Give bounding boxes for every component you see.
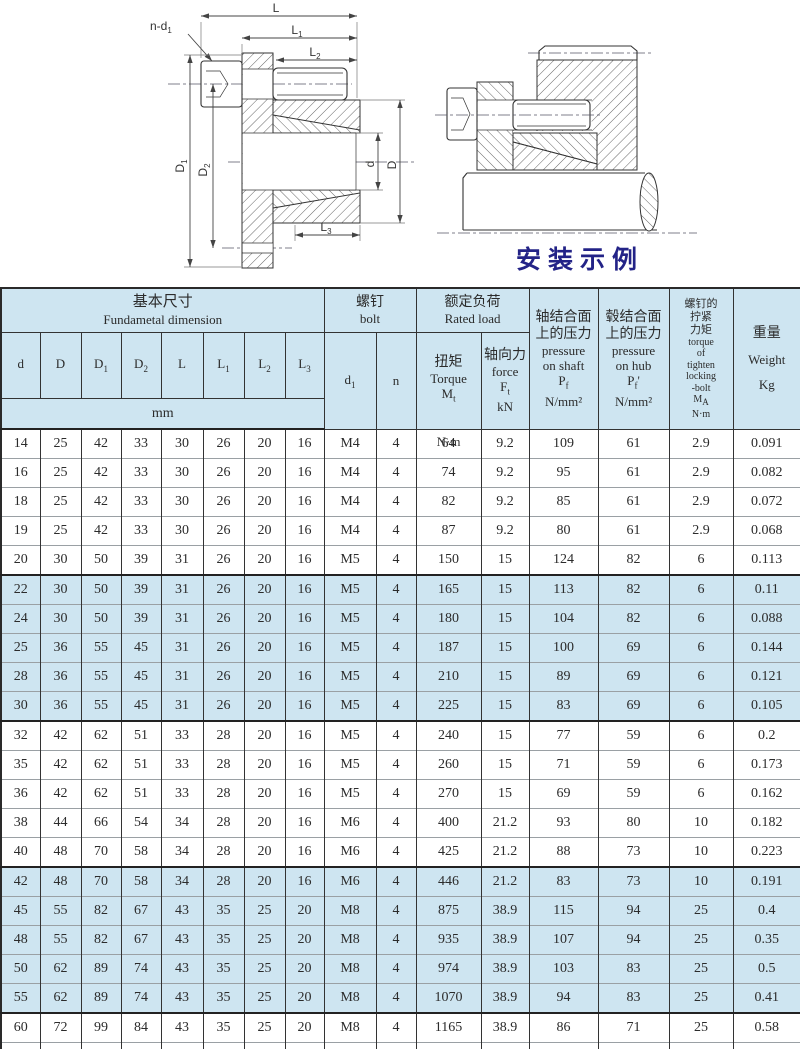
table-cell: 25 — [40, 488, 81, 517]
table-cell: 43 — [161, 1013, 203, 1043]
table-cell: 21.2 — [481, 809, 529, 838]
table-cell: 9.2 — [481, 517, 529, 546]
table-cell: 24 — [1, 605, 40, 634]
table-cell: 15 — [481, 751, 529, 780]
table-row: 2430503931262016M54180151048260.088 — [1, 605, 800, 634]
table-cell: M4 — [324, 459, 376, 488]
table-cell: 31 — [161, 663, 203, 692]
table-cell: 62 — [40, 955, 81, 984]
table-cell: M5 — [324, 575, 376, 605]
table-cell: 82 — [81, 926, 121, 955]
table-row: 6072998443352520M84116538.98671250.58 — [1, 1013, 800, 1043]
table-cell: 25 — [669, 1013, 733, 1043]
table-cell: M5 — [324, 780, 376, 809]
table-cell: 4 — [376, 517, 416, 546]
dim-label-L2: L2 — [309, 45, 321, 61]
dim-label-D1: D1 — [173, 159, 189, 173]
table-cell: 16 — [285, 459, 324, 488]
table-cell: 187 — [416, 634, 481, 663]
table-row: 5562897443352520M84107038.99483250.41 — [1, 984, 800, 1014]
table-cell: 0.46 — [733, 1043, 800, 1049]
table-cell: 4 — [376, 634, 416, 663]
table-cell: 20 — [244, 488, 285, 517]
table-cell: 20 — [244, 517, 285, 546]
table-cell: M4 — [324, 517, 376, 546]
table-cell: 20 — [244, 429, 285, 459]
dim-label-D: D — [385, 160, 399, 169]
table-cell: 16 — [285, 721, 324, 751]
table-cell: 0.41 — [733, 984, 800, 1014]
table-cell: 72 — [40, 1013, 81, 1043]
table-cell: 20 — [285, 984, 324, 1014]
table-cell: 21.2 — [481, 867, 529, 897]
table-cell: 84 — [121, 1013, 161, 1043]
table-cell: M8 — [324, 955, 376, 984]
table-cell: 15 — [481, 634, 529, 663]
table-cell: M5 — [324, 721, 376, 751]
col-header-L3: L3 — [285, 332, 324, 398]
shaft — [437, 173, 697, 233]
table-cell: 33 — [161, 721, 203, 751]
table-cell: 69 — [598, 634, 669, 663]
table-cell: 0.11 — [733, 575, 800, 605]
table-cell: 30 — [161, 459, 203, 488]
col-header-axial-force: 轴向力 force Ft kN — [481, 332, 529, 429]
table-cell: 73 — [598, 838, 669, 868]
table-cell: 0.58 — [733, 1013, 800, 1043]
table-cell: 62 — [81, 721, 121, 751]
table-cell: 39 — [121, 546, 161, 576]
table-cell: 55 — [81, 692, 121, 722]
table-cell: M8 — [324, 984, 376, 1014]
table-cell: 15 — [481, 692, 529, 722]
table-row: 3542625133282016M5426015715960.173 — [1, 751, 800, 780]
header-rated-load: 额定负荷 Rated load — [416, 288, 529, 332]
table-cell: 48 — [40, 838, 81, 868]
table-cell: 20 — [285, 926, 324, 955]
table-cell: 65 — [1, 1043, 40, 1049]
table-cell: 42 — [81, 488, 121, 517]
table-cell: 20 — [244, 663, 285, 692]
table-cell: 25 — [244, 897, 285, 926]
table-cell: 113 — [529, 575, 598, 605]
table-cell: 16 — [285, 517, 324, 546]
table-cell: 9.2 — [481, 429, 529, 459]
table-cell: 150 — [416, 546, 481, 576]
table-cell: 25 — [244, 1013, 285, 1043]
table-cell: 1165 — [416, 1013, 481, 1043]
table-cell: 103 — [529, 955, 598, 984]
table-cell: 39 — [121, 605, 161, 634]
table-cell: 30 — [161, 429, 203, 459]
table-cell: 26 — [203, 546, 244, 576]
table-cell: 87 — [416, 517, 481, 546]
table-row: 4855826743352520M8493538.910794250.35 — [1, 926, 800, 955]
table-cell: 30 — [40, 546, 81, 576]
table-cell: 83 — [529, 867, 598, 897]
table-cell: 45 — [121, 692, 161, 722]
table-cell: 34 — [161, 867, 203, 897]
table-cell: 4 — [376, 897, 416, 926]
table-cell: 35 — [203, 1043, 244, 1049]
table-cell: 59 — [598, 751, 669, 780]
table-row: 3844665434282016M6440021.29380100.182 — [1, 809, 800, 838]
table-cell: 69 — [529, 780, 598, 809]
table-cell: 94 — [529, 984, 598, 1014]
table-cell: 55 — [1, 984, 40, 1014]
table-cell: 64 — [416, 429, 481, 459]
table-cell: 25 — [669, 955, 733, 984]
table-cell: 25 — [244, 926, 285, 955]
table-cell: 0.068 — [733, 517, 800, 546]
table-cell: 4 — [376, 488, 416, 517]
table-cell: 36 — [1, 780, 40, 809]
table-cell: 30 — [161, 517, 203, 546]
table-cell: 60 — [1, 1013, 40, 1043]
header-unit-mm: mm — [1, 398, 324, 429]
table-cell: 4 — [376, 751, 416, 780]
table-cell: 34 — [161, 838, 203, 868]
table-cell: 34 — [161, 809, 203, 838]
table-cell: 51 — [121, 780, 161, 809]
table-cell: 10 — [669, 809, 733, 838]
dim-label-nd1: n-d1 — [150, 19, 172, 35]
table-cell: 28 — [203, 751, 244, 780]
table-cell: 26 — [203, 605, 244, 634]
table-cell: M8 — [324, 1043, 376, 1049]
table-cell: 30 — [40, 575, 81, 605]
table-cell: 35 — [203, 897, 244, 926]
table-cell: 61 — [598, 488, 669, 517]
table-cell: 55 — [40, 897, 81, 926]
table-cell: 31 — [161, 575, 203, 605]
table-cell: 61 — [598, 517, 669, 546]
table-cell: 20 — [244, 459, 285, 488]
table-cell: 55 — [40, 926, 81, 955]
table-cell: 21.2 — [481, 838, 529, 868]
table-cell: 16 — [285, 751, 324, 780]
table-cell: 270 — [416, 780, 481, 809]
table-cell: 45 — [121, 663, 161, 692]
table-cell: 935 — [416, 926, 481, 955]
table-cell: 61 — [598, 429, 669, 459]
table-cell: 30 — [40, 605, 81, 634]
table-cell: 6 — [669, 751, 733, 780]
table-cell: 6 — [669, 575, 733, 605]
table-cell: 82 — [598, 575, 669, 605]
table-cell: 20 — [244, 809, 285, 838]
table-cell: 51 — [121, 721, 161, 751]
table-cell: 225 — [416, 692, 481, 722]
table-cell: M6 — [324, 838, 376, 868]
table-cell: 20 — [244, 634, 285, 663]
table-cell: 4 — [376, 838, 416, 868]
table-cell: 62 — [81, 780, 121, 809]
table-cell: 38.9 — [481, 955, 529, 984]
header-basic-dimension: 基本尺寸 Fundametal dimension — [1, 288, 324, 332]
col-header-torque: 扭矩 Torque Mt N·m — [416, 332, 481, 429]
table-cell: 4 — [376, 692, 416, 722]
table-cell: 4 — [376, 809, 416, 838]
table-cell: 15 — [481, 663, 529, 692]
col-header-D: D — [40, 332, 81, 398]
table-cell: M5 — [324, 751, 376, 780]
table-cell: 2.9 — [669, 429, 733, 459]
table-cell: M5 — [324, 634, 376, 663]
table-cell: 82 — [416, 488, 481, 517]
table-row: 2836554531262016M5421015896960.121 — [1, 663, 800, 692]
table-cell: 25 — [244, 955, 285, 984]
table-cell: 89 — [529, 663, 598, 692]
dim-label-D2: D2 — [196, 163, 212, 177]
table-cell: 16 — [285, 605, 324, 634]
table-cell: 85 — [529, 488, 598, 517]
table-cell: 35 — [203, 926, 244, 955]
table-cell: 425 — [416, 838, 481, 868]
table-cell: 35 — [203, 955, 244, 984]
table-row: 1825423330262016M44829.285612.90.072 — [1, 488, 800, 517]
table-row: 2230503931262016M54165151138260.11 — [1, 575, 800, 605]
table-cell: M5 — [324, 546, 376, 576]
col-header-D2: D2 — [121, 332, 161, 398]
table-cell: 33 — [161, 780, 203, 809]
table-cell: 16 — [285, 575, 324, 605]
table-cell: 25 — [669, 1043, 733, 1049]
table-cell: 4 — [376, 1013, 416, 1043]
table-cell: 15 — [481, 575, 529, 605]
table-cell: 25 — [40, 429, 81, 459]
table-cell: 43 — [161, 926, 203, 955]
table-cell: 38.9 — [481, 984, 529, 1014]
table-body: 1425423330262016M44649.2109612.90.091162… — [1, 429, 800, 1049]
drawings-panel: L L1 L2 L3 n-d1 D1 — [0, 0, 800, 287]
table-cell: 48 — [40, 867, 81, 897]
col-header-pressure-hub: 毂结合面 上的压力 pressure on hub Pf' N/mm² — [598, 288, 669, 429]
table-cell: 50 — [81, 605, 121, 634]
table-cell: 875 — [416, 897, 481, 926]
table-cell: 31 — [161, 546, 203, 576]
table-cell: 82 — [598, 546, 669, 576]
table-cell: 6 — [669, 605, 733, 634]
table-cell: 66 — [81, 809, 121, 838]
shaft-end-section — [640, 173, 658, 231]
table-cell: 42 — [40, 780, 81, 809]
table-cell: 16 — [285, 838, 324, 868]
table-row: 6572998443352520M84126538.97971250.46 — [1, 1043, 800, 1049]
table-row: 3642625133282016M5427015695960.162 — [1, 780, 800, 809]
table-cell: 6 — [669, 663, 733, 692]
table-cell: 10 — [669, 867, 733, 897]
table-cell: 20 — [244, 692, 285, 722]
drawings-svg: L L1 L2 L3 n-d1 D1 — [0, 0, 800, 287]
table-cell: 16 — [285, 429, 324, 459]
table-cell: 35 — [203, 1013, 244, 1043]
table-cell: 100 — [529, 634, 598, 663]
table-cell: 180 — [416, 605, 481, 634]
table-cell: 0.105 — [733, 692, 800, 722]
table-cell: 4 — [376, 721, 416, 751]
table-cell: 4 — [376, 546, 416, 576]
table-cell: 0.088 — [733, 605, 800, 634]
table-cell: 0.082 — [733, 459, 800, 488]
table-cell: 25 — [1, 634, 40, 663]
table-cell: 25 — [669, 897, 733, 926]
table-cell: 94 — [598, 897, 669, 926]
table-cell: 0.162 — [733, 780, 800, 809]
table-cell: 61 — [598, 459, 669, 488]
table-cell: 26 — [203, 692, 244, 722]
table-cell: 20 — [285, 1013, 324, 1043]
table-cell: 16 — [285, 809, 324, 838]
table-cell: 71 — [598, 1013, 669, 1043]
col-header-tightening-torque: 螺钉的 拧紧 力矩 torque of tighten locking -bol… — [669, 288, 733, 429]
table-cell: 4 — [376, 1043, 416, 1049]
dim-label-L1: L1 — [291, 23, 303, 39]
table-cell: 446 — [416, 867, 481, 897]
table-row: 1625423330262016M44749.295612.90.082 — [1, 459, 800, 488]
table-cell: 70 — [81, 838, 121, 868]
table-cell: 115 — [529, 897, 598, 926]
table-cell: 74 — [416, 459, 481, 488]
table-row: 4555826743352520M8487538.911594250.4 — [1, 897, 800, 926]
table-row: 3242625133282016M5424015775960.2 — [1, 721, 800, 751]
table-cell: 20 — [244, 838, 285, 868]
table-cell: 210 — [416, 663, 481, 692]
table-cell: 20 — [285, 897, 324, 926]
table-cell: 16 — [285, 634, 324, 663]
table-cell: 35 — [1, 751, 40, 780]
table-cell: 16 — [285, 867, 324, 897]
table-cell: 33 — [121, 517, 161, 546]
table-cell: 20 — [244, 867, 285, 897]
table-cell: 165 — [416, 575, 481, 605]
table-cell: 30 — [161, 488, 203, 517]
table-cell: 58 — [121, 867, 161, 897]
page-root: L L1 L2 L3 n-d1 D1 — [0, 0, 800, 1049]
table-cell: M5 — [324, 663, 376, 692]
table-cell: 0.113 — [733, 546, 800, 576]
table-cell: 15 — [481, 780, 529, 809]
table-cell: 36 — [40, 663, 81, 692]
table-cell: 42 — [81, 517, 121, 546]
table-cell: 25 — [244, 984, 285, 1014]
table-cell: 69 — [598, 663, 669, 692]
table-cell: 30 — [1, 692, 40, 722]
col-header-L1: L1 — [203, 332, 244, 398]
table-cell: M6 — [324, 867, 376, 897]
table-cell: 69 — [598, 692, 669, 722]
table-cell: 4 — [376, 575, 416, 605]
table-cell: 33 — [121, 429, 161, 459]
table-cell: 74 — [121, 955, 161, 984]
table-cell: M4 — [324, 488, 376, 517]
table-cell: 974 — [416, 955, 481, 984]
table-cell: 80 — [529, 517, 598, 546]
col-header-L2: L2 — [244, 332, 285, 398]
table-cell: 4 — [376, 955, 416, 984]
table-cell: 59 — [598, 721, 669, 751]
installation-drawing — [435, 46, 697, 233]
table-cell: 67 — [121, 926, 161, 955]
table-cell: 28 — [203, 867, 244, 897]
table-cell: 72 — [40, 1043, 81, 1049]
table-cell: 0.072 — [733, 488, 800, 517]
table-cell: 9.2 — [481, 488, 529, 517]
table-cell: 31 — [161, 605, 203, 634]
table-cell: 26 — [203, 517, 244, 546]
table-cell: 16 — [285, 780, 324, 809]
table-cell: 107 — [529, 926, 598, 955]
table-cell: 54 — [121, 809, 161, 838]
table-cell: 86 — [529, 1013, 598, 1043]
table-cell: 45 — [1, 897, 40, 926]
table-cell: 4 — [376, 459, 416, 488]
table-cell: 15 — [481, 721, 529, 751]
table-cell: 25 — [40, 459, 81, 488]
table-cell: 28 — [203, 780, 244, 809]
table-cell: 38.9 — [481, 897, 529, 926]
table-cell: 28 — [203, 809, 244, 838]
table-cell: 28 — [203, 721, 244, 751]
table-cell: 10 — [669, 838, 733, 868]
table-cell: 26 — [203, 459, 244, 488]
table-cell: 71 — [598, 1043, 669, 1049]
table-cell: 83 — [529, 692, 598, 722]
table-cell: 124 — [529, 546, 598, 576]
table-cell: 79 — [529, 1043, 598, 1049]
table-cell: 38.9 — [481, 1013, 529, 1043]
table-cell: 0.144 — [733, 634, 800, 663]
table-cell: 4 — [376, 926, 416, 955]
table-cell: 83 — [598, 984, 669, 1014]
table-cell: 42 — [1, 867, 40, 897]
table-cell: 0.2 — [733, 721, 800, 751]
table-cell: 6 — [669, 780, 733, 809]
table-cell: 0.191 — [733, 867, 800, 897]
table-cell: 71 — [529, 751, 598, 780]
table-cell: 77 — [529, 721, 598, 751]
table-cell: 58 — [121, 838, 161, 868]
table-cell: 104 — [529, 605, 598, 634]
table-cell: 70 — [81, 867, 121, 897]
table-cell: 88 — [529, 838, 598, 868]
table-cell: 59 — [598, 780, 669, 809]
table-cell: 20 — [285, 1043, 324, 1049]
table-cell: 16 — [285, 692, 324, 722]
table-cell: 89 — [81, 984, 121, 1014]
table-cell: 62 — [81, 751, 121, 780]
table-cell: M6 — [324, 809, 376, 838]
table-cell: 40 — [1, 838, 40, 868]
table-cell: 26 — [203, 575, 244, 605]
table-cell: 28 — [1, 663, 40, 692]
table-cell: 28 — [203, 838, 244, 868]
table-cell: 0.4 — [733, 897, 800, 926]
table-cell: 20 — [285, 955, 324, 984]
table-cell: 22 — [1, 575, 40, 605]
table-cell: 99 — [81, 1043, 121, 1049]
table-cell: 2.9 — [669, 459, 733, 488]
table-cell: 33 — [121, 459, 161, 488]
table-cell: 50 — [81, 546, 121, 576]
table-cell: 94 — [598, 926, 669, 955]
table-cell: 50 — [81, 575, 121, 605]
table-cell: 82 — [598, 605, 669, 634]
table-cell: 45 — [121, 634, 161, 663]
table-cell: 32 — [1, 721, 40, 751]
table-cell: 33 — [161, 751, 203, 780]
table-cell: 25 — [244, 1043, 285, 1049]
